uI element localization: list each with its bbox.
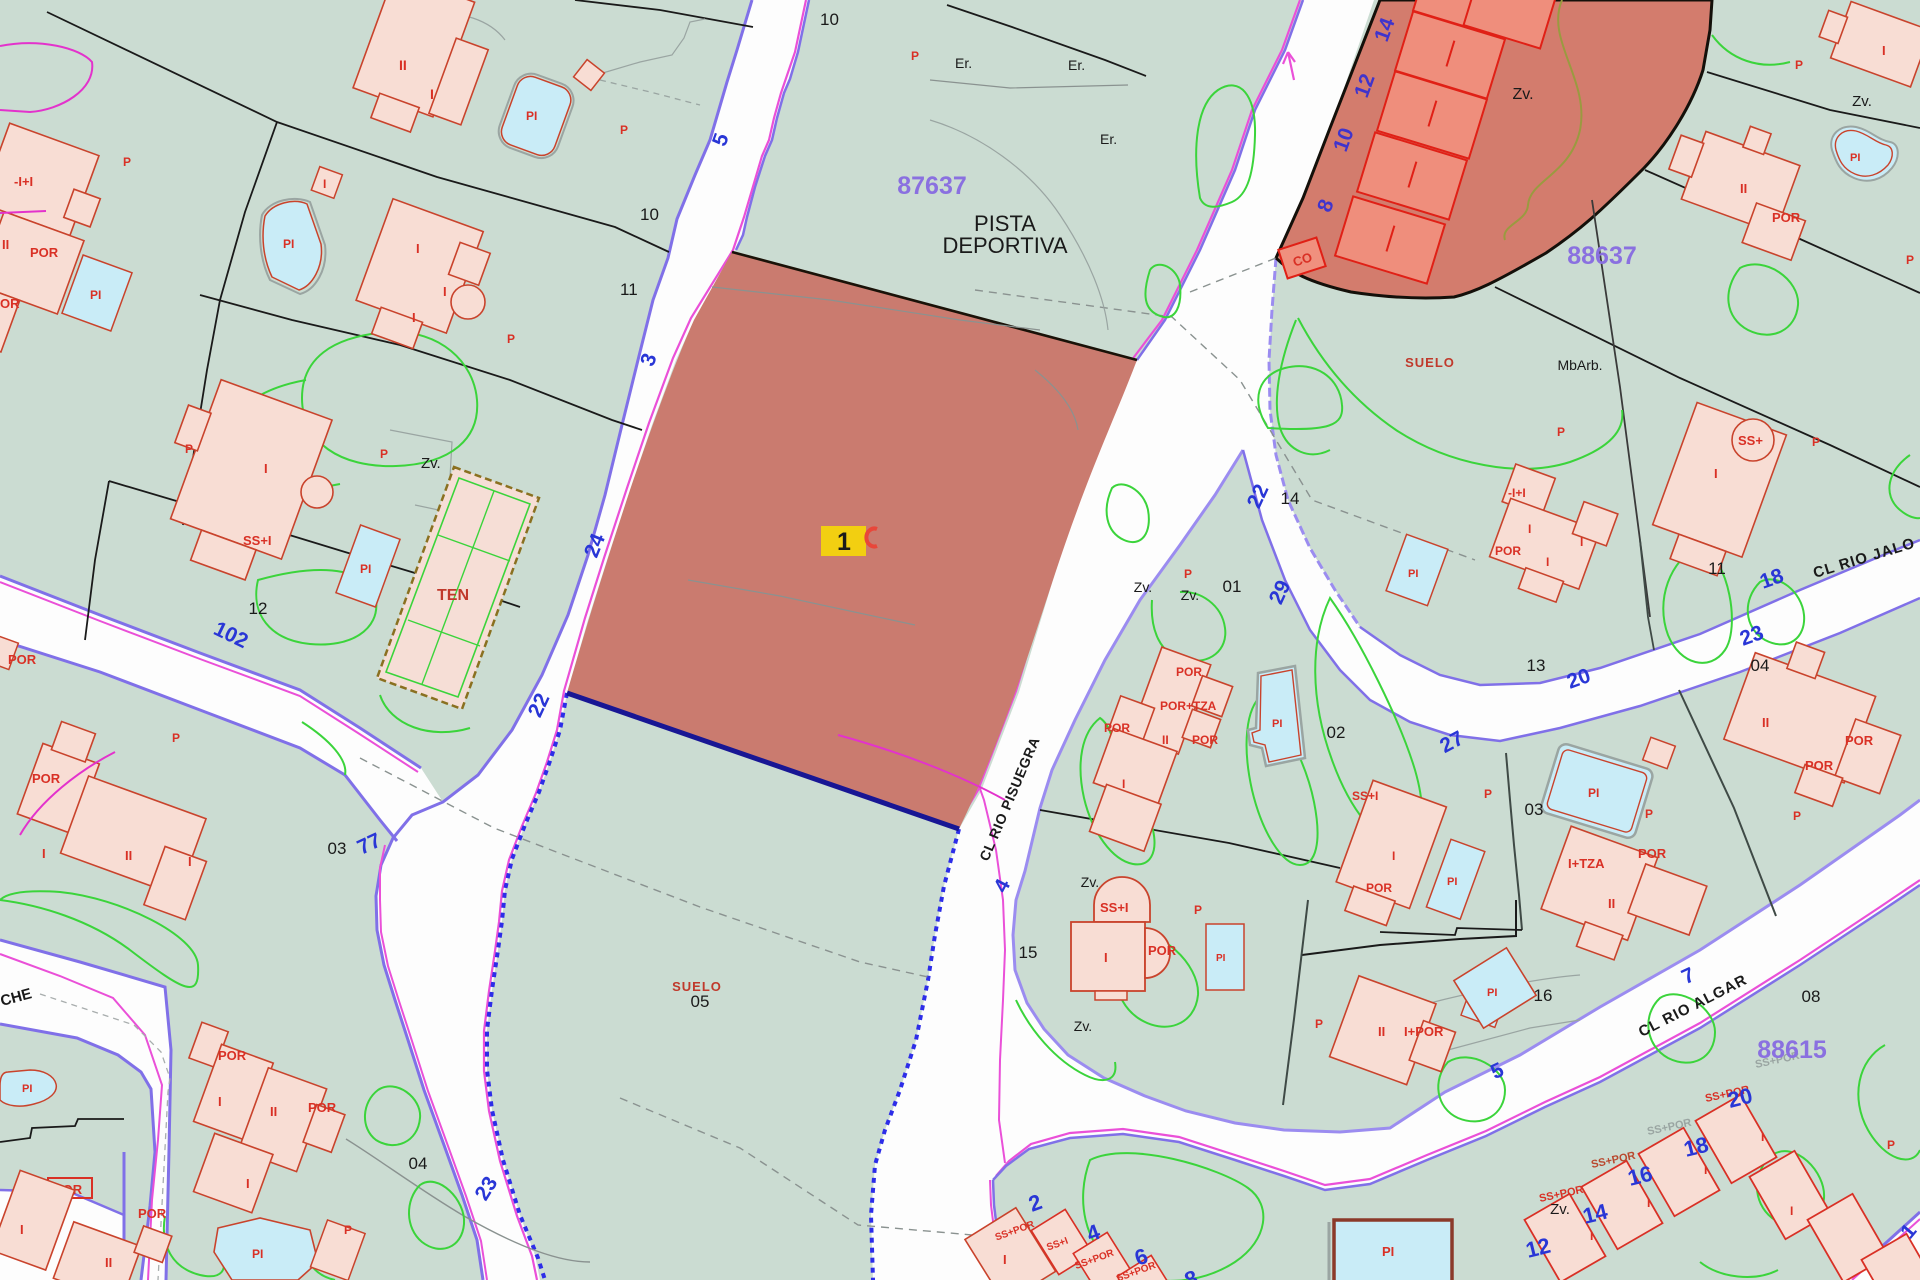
svg-text:Zv.: Zv. (421, 455, 441, 472)
svg-text:I: I (430, 86, 434, 102)
svg-text:P: P (1194, 903, 1202, 917)
svg-text:Zv.: Zv. (1512, 86, 1533, 103)
svg-text:Zv.: Zv. (1550, 1201, 1570, 1218)
svg-text:PI: PI (1588, 786, 1599, 800)
svg-text:I: I (1590, 1229, 1593, 1243)
svg-text:11: 11 (620, 280, 638, 299)
svg-text:II: II (270, 1104, 277, 1119)
svg-text:II: II (1740, 181, 1747, 196)
svg-text:I: I (323, 177, 326, 191)
svg-text:P: P (172, 731, 180, 745)
svg-text:PI: PI (526, 109, 537, 123)
svg-text:I: I (188, 854, 192, 869)
svg-text:-I+I: -I+I (14, 174, 33, 189)
svg-text:II: II (105, 1255, 112, 1270)
svg-text:POR: POR (1845, 733, 1874, 748)
svg-text:I+POR: I+POR (1404, 1024, 1444, 1039)
svg-text:POR: POR (1772, 210, 1801, 225)
svg-text:P: P (1557, 425, 1565, 439)
svg-text:88637: 88637 (1567, 242, 1637, 270)
svg-text:PI: PI (90, 288, 101, 302)
svg-text:P: P (1795, 58, 1803, 72)
svg-text:I: I (1122, 777, 1125, 791)
svg-text:10: 10 (640, 205, 659, 224)
svg-text:14: 14 (1281, 489, 1300, 508)
svg-text:P: P (911, 49, 919, 63)
svg-text:Zv.: Zv. (1181, 587, 1199, 603)
svg-text:PI: PI (283, 237, 294, 251)
svg-text:I+TZA: I+TZA (1568, 856, 1605, 871)
svg-text:PI: PI (1216, 953, 1226, 964)
svg-text:PI: PI (1272, 718, 1282, 730)
svg-text:PI: PI (252, 1247, 263, 1261)
svg-text:15: 15 (1019, 943, 1038, 962)
svg-text:04: 04 (1751, 656, 1770, 675)
svg-text:I: I (264, 461, 268, 476)
svg-text:PI: PI (360, 562, 371, 576)
svg-text:POR: POR (218, 1048, 247, 1063)
svg-text:II: II (1762, 715, 1769, 730)
svg-text:03: 03 (328, 839, 347, 858)
svg-text:PI: PI (1850, 152, 1860, 164)
svg-text:P: P (1315, 1017, 1323, 1031)
svg-text:II: II (125, 848, 132, 863)
svg-text:I: I (20, 1222, 24, 1237)
svg-text:SS+I: SS+I (1352, 789, 1378, 803)
svg-text:Zv.: Zv. (1074, 1018, 1092, 1034)
svg-text:P: P (620, 123, 628, 137)
svg-text:II: II (1608, 896, 1615, 911)
svg-text:I: I (1104, 950, 1108, 965)
svg-text:POR: POR (1638, 846, 1667, 861)
svg-text:01: 01 (1223, 577, 1242, 596)
svg-text:03: 03 (1525, 800, 1544, 819)
svg-text:SS+I: SS+I (243, 533, 272, 548)
svg-text:POR: POR (1192, 733, 1218, 747)
svg-text:Er.: Er. (1068, 57, 1085, 73)
svg-text:PI: PI (1447, 876, 1457, 888)
svg-text:DEPORTIVA: DEPORTIVA (942, 233, 1067, 258)
svg-text:P: P (344, 1223, 352, 1237)
svg-text:I: I (1790, 1204, 1793, 1218)
svg-text:POR: POR (308, 1100, 337, 1115)
svg-text:POR: POR (1148, 943, 1177, 958)
svg-text:POR: POR (1366, 881, 1392, 895)
svg-text:P: P (1812, 435, 1820, 449)
svg-text:P: P (1645, 807, 1653, 821)
svg-text:I: I (246, 1176, 250, 1191)
svg-text:04: 04 (409, 1154, 428, 1173)
svg-text:I: I (1546, 555, 1549, 569)
svg-text:P: P (1906, 253, 1914, 267)
svg-text:I: I (1528, 522, 1531, 536)
svg-text:P: P (380, 447, 388, 461)
svg-text:13: 13 (1527, 656, 1546, 675)
svg-text:PI: PI (1487, 987, 1497, 999)
svg-text:II: II (2, 237, 9, 252)
svg-text:Er.: Er. (955, 55, 972, 71)
svg-text:POR: POR (8, 652, 37, 667)
svg-text:I: I (1882, 43, 1886, 58)
svg-text:I: I (1003, 1252, 1007, 1267)
svg-text:SUELO: SUELO (1405, 355, 1455, 370)
svg-text:POR: POR (1176, 665, 1202, 679)
svg-text:Zv.: Zv. (1134, 579, 1152, 595)
svg-text:1: 1 (837, 528, 851, 556)
svg-text:I: I (1580, 535, 1583, 549)
svg-text:OR: OR (0, 296, 20, 311)
svg-text:MbArb.: MbArb. (1557, 357, 1602, 373)
svg-text:SS+: SS+ (1738, 433, 1763, 448)
svg-text:12: 12 (249, 599, 268, 618)
svg-text:88615: 88615 (1757, 1036, 1827, 1064)
svg-text:PI: PI (22, 1083, 32, 1095)
svg-text:08: 08 (1802, 987, 1821, 1006)
svg-text:POR: POR (30, 245, 59, 260)
svg-text:16: 16 (1534, 986, 1553, 1005)
svg-text:Zv.: Zv. (1081, 874, 1099, 890)
svg-text:P: P (507, 332, 515, 346)
svg-text:10: 10 (820, 10, 839, 29)
svg-text:11: 11 (1708, 559, 1726, 578)
svg-text:-I+I: -I+I (1508, 486, 1526, 500)
svg-text:I: I (412, 310, 416, 325)
svg-text:P: P (1484, 787, 1492, 801)
svg-text:POR: POR (32, 771, 61, 786)
svg-text:P: P (123, 155, 131, 169)
svg-text:P: P (185, 442, 193, 456)
svg-text:P: P (1184, 567, 1192, 581)
svg-text:P: P (1793, 809, 1801, 823)
svg-text:POR: POR (138, 1206, 167, 1221)
svg-text:I: I (42, 846, 46, 861)
svg-text:Er.: Er. (1100, 131, 1117, 147)
svg-text:I: I (443, 284, 447, 299)
svg-text:87637: 87637 (897, 172, 967, 200)
svg-text:TEN: TEN (437, 587, 469, 604)
svg-text:Zv.: Zv. (1852, 93, 1872, 110)
svg-text:I: I (218, 1094, 222, 1109)
svg-text:POR: POR (1104, 721, 1130, 735)
svg-text:II: II (1378, 1024, 1385, 1039)
svg-text:PI: PI (1408, 568, 1418, 580)
svg-text:POR: POR (1805, 758, 1834, 773)
svg-text:PI: PI (1382, 1244, 1394, 1259)
svg-text:POR: POR (1495, 544, 1521, 558)
svg-text:I: I (1647, 1196, 1650, 1210)
svg-text:I: I (1761, 1130, 1764, 1144)
svg-text:II: II (1162, 733, 1169, 747)
svg-text:I: I (1714, 466, 1718, 481)
svg-text:02: 02 (1327, 723, 1346, 742)
svg-text:II: II (399, 57, 407, 73)
svg-text:SS+I: SS+I (1100, 900, 1129, 915)
svg-text:I: I (1704, 1163, 1707, 1177)
svg-text:POR+TZA: POR+TZA (1160, 699, 1217, 713)
svg-text:P: P (1887, 1138, 1895, 1152)
svg-text:I: I (416, 241, 420, 256)
svg-text:I: I (1392, 849, 1395, 863)
svg-text:05: 05 (691, 992, 710, 1011)
